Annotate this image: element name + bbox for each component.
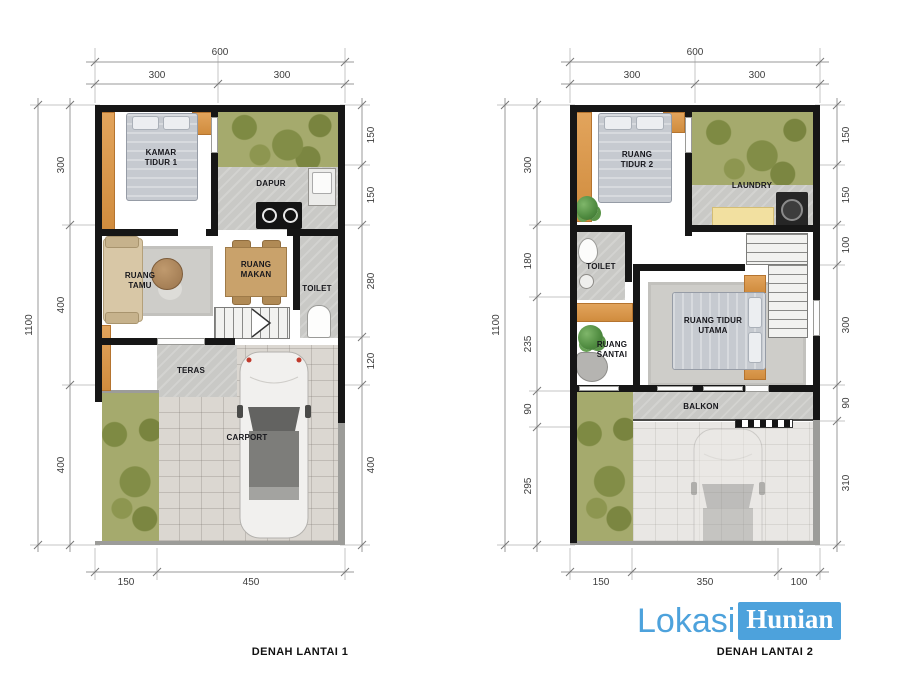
room-label-lounge: RUANG SANTAI (590, 340, 634, 360)
dim-left-seg: 295 (523, 464, 535, 508)
pillow (636, 116, 664, 130)
dim-top-total: 600 (190, 47, 250, 59)
dim-left-seg: 300 (523, 143, 535, 187)
toilet-bowl (578, 238, 598, 264)
wall (287, 229, 345, 236)
dim-right-seg: 120 (366, 339, 378, 383)
window (685, 117, 692, 153)
stairs-direction-arrow (214, 307, 290, 339)
dim-bottom-seg: 450 (221, 577, 281, 589)
wall (205, 338, 235, 345)
room-label-master: RUANG TIDUR UTAMA (677, 316, 749, 336)
wall (95, 338, 157, 345)
room-label-balcony: BALKON (683, 402, 718, 412)
dim-bottom-seg: 150 (571, 577, 631, 589)
dim-left-seg: 235 (523, 322, 535, 366)
door-opening (157, 338, 205, 345)
wall (570, 105, 820, 112)
dim-right-seg: 280 (366, 259, 378, 303)
dim-right-seg: 300 (841, 303, 853, 347)
dim-bottom-seg: 100 (769, 577, 829, 589)
wall (690, 225, 820, 232)
dim-left-seg: 400 (56, 443, 68, 487)
curb (813, 420, 820, 541)
wall (206, 229, 218, 236)
window (813, 300, 820, 336)
dim-right-seg: 150 (841, 113, 853, 157)
curb (95, 541, 345, 545)
stove-burner (262, 208, 277, 223)
dim-top-seg: 300 (602, 70, 662, 82)
window (657, 386, 693, 391)
pillow (748, 297, 762, 328)
pillow (132, 116, 159, 130)
dim-bottom-seg: 150 (96, 577, 156, 589)
stairs-upper (746, 233, 808, 265)
dim-top-total: 600 (665, 47, 725, 59)
wall (813, 105, 820, 420)
wall (633, 264, 745, 271)
nightstand (744, 275, 766, 293)
dim-top-seg: 300 (252, 70, 312, 82)
car-top-view-ghost (690, 426, 766, 541)
wall (570, 105, 577, 543)
dim-right-seg: 150 (841, 173, 853, 217)
wall (338, 105, 345, 423)
dim-bottom-seg: 350 (675, 577, 735, 589)
dim-right-seg: 150 (366, 173, 378, 217)
dim-side-total: 1100 (491, 303, 503, 347)
room-label-kitchen: DAPUR (256, 179, 285, 189)
garden-area (692, 112, 813, 185)
stairs-run (768, 264, 808, 338)
wall (293, 236, 300, 310)
wall (95, 229, 178, 236)
logo-text-hunian: Hunian (738, 602, 841, 640)
dim-right-seg: 310 (841, 461, 853, 505)
window (703, 386, 743, 391)
washing-machine-drum (781, 199, 803, 221)
plant (576, 196, 598, 220)
balcony-railing (735, 419, 793, 428)
dim-top-seg: 300 (127, 70, 187, 82)
pillow (163, 116, 190, 130)
wall (633, 264, 640, 392)
balcony-floor (633, 392, 813, 421)
room-label-bedroom1: KAMAR TIDUR 1 (133, 148, 189, 168)
garden-area (577, 392, 633, 541)
room-label-toilet2: TOILET (586, 262, 616, 272)
door-opening (745, 385, 769, 392)
room-label-carport: CARPORT (227, 433, 268, 443)
curb (570, 541, 820, 545)
wall (570, 225, 632, 232)
bathroom-sink (579, 274, 594, 289)
pillow (748, 332, 762, 363)
plan2-title: DENAH LANTAI 2 (685, 646, 845, 658)
wall (95, 105, 345, 112)
room-label-laundry: LAUNDRY (732, 181, 772, 191)
room-label-living: RUANG TAMU (118, 271, 162, 291)
dim-left-seg: 90 (523, 387, 535, 431)
shower (307, 305, 331, 338)
sofa-arm (105, 236, 139, 248)
lokasihunian-logo: Lokasi Hunian (637, 601, 841, 641)
dim-left-seg: 400 (56, 283, 68, 327)
room-label-bedroom2: RUANG TIDUR 2 (613, 150, 661, 170)
wall (625, 232, 632, 282)
dim-left-seg: 180 (523, 239, 535, 283)
garden-area (102, 393, 159, 541)
garden-area (218, 112, 338, 167)
window (211, 117, 218, 153)
dim-right-seg: 90 (841, 381, 853, 425)
dim-right-seg: 400 (366, 443, 378, 487)
stove-burner (283, 208, 298, 223)
wall (95, 105, 102, 402)
floorplan-canvas: KAMAR TIDUR 1 DAPUR RUANG TAMU RUANG MAK… (0, 0, 900, 675)
window (579, 386, 619, 391)
sofa-arm (105, 312, 139, 324)
dim-right-seg: 150 (366, 113, 378, 157)
plan1-title: DENAH LANTAI 1 (220, 646, 380, 658)
dim-left-seg: 300 (56, 143, 68, 187)
dim-right-seg: 100 (841, 223, 853, 267)
room-label-porch: TERAS (177, 366, 205, 376)
bench (575, 303, 633, 322)
room-label-toilet1: TOILET (302, 284, 332, 294)
room-label-dining: RUANG MAKAN (232, 260, 280, 280)
sink-basin (312, 172, 332, 194)
dim-side-total: 1100 (24, 303, 36, 347)
pillow (604, 116, 632, 130)
car-top-view (236, 349, 312, 541)
dim-top-seg: 300 (727, 70, 787, 82)
logo-text-lokasi: Lokasi (637, 602, 735, 641)
curb (338, 423, 345, 541)
